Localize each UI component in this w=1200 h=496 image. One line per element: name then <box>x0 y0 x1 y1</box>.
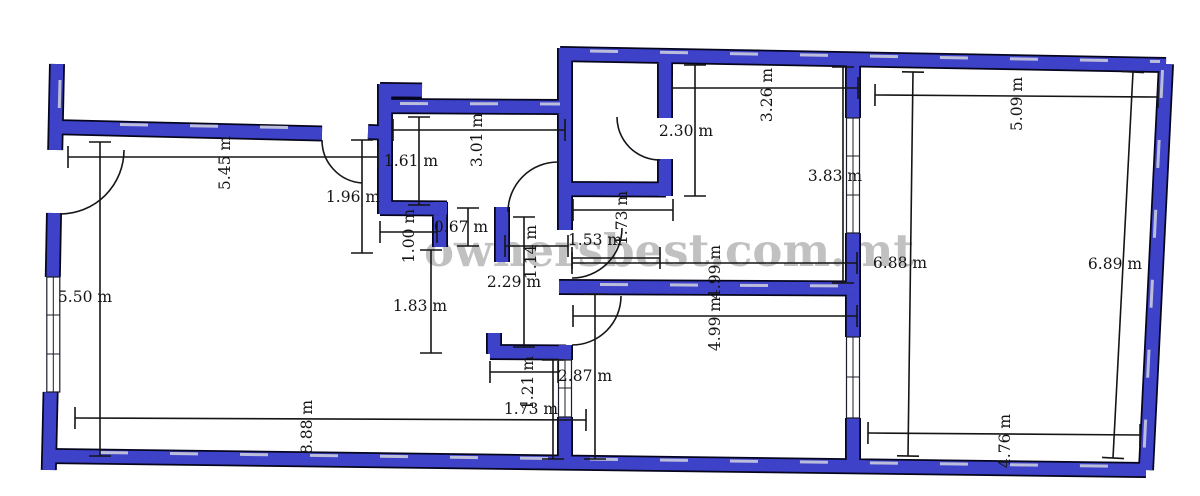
dimension-label: 6.88 m <box>873 254 927 272</box>
dimension-label: 5.09 m <box>1008 77 1026 131</box>
dimension-label: 3.83 m <box>808 167 862 185</box>
dimension-label: 1.00 m <box>400 209 418 263</box>
dimension: 6.88 m <box>873 72 927 456</box>
dimension: 6.89 m <box>1088 71 1144 458</box>
dimension-label: 2.29 m <box>487 273 541 291</box>
window <box>847 337 860 418</box>
door-arc <box>60 150 124 214</box>
dimension: 1.14 m <box>505 225 568 279</box>
dimension: 4.99 m <box>573 297 857 351</box>
dimension-label: 5.45 m <box>216 136 234 190</box>
dimension: 1.83 m <box>393 250 447 353</box>
dimension-label: 1.73 m <box>613 191 631 245</box>
dimension-line <box>75 418 586 420</box>
dimension-label: 4.76 m <box>996 414 1014 468</box>
dimension-label: 0.67 m <box>434 218 488 236</box>
dimension: 5.45 m <box>68 136 378 190</box>
dimension: 5.09 m <box>875 77 1158 131</box>
dimension-label: 1.73 m <box>504 400 558 418</box>
door-arc <box>508 162 558 212</box>
wall-fill <box>48 48 1166 470</box>
door-arc <box>322 140 362 183</box>
dimension-tick <box>1122 71 1144 72</box>
dimension-label: 8.88 m <box>298 400 316 454</box>
windows-layer <box>47 118 860 418</box>
dimension: 3.26 m <box>672 68 858 122</box>
dimension: 5.50 m <box>58 142 112 456</box>
dimension-label: 5.50 m <box>58 288 112 306</box>
dimension-label: 3.26 m <box>758 68 776 122</box>
floor-plan-page: ownersbest.com.mt <box>0 0 1200 496</box>
wall-outline <box>48 48 1166 470</box>
floor-plan-svg: 5.45 m5.50 m1.61 m3.01 m1.96 m1.00 m0.67… <box>0 0 1200 496</box>
dimension: 1.00 m <box>380 209 437 263</box>
dimension-label: 6.89 m <box>1088 255 1142 273</box>
dimension-label: 1.83 m <box>393 297 447 315</box>
door-arc <box>572 296 621 345</box>
dimension-tick <box>1102 457 1124 458</box>
dimension-label: 3.01 m <box>468 113 486 167</box>
dimension-label: 4.99 m <box>706 245 724 299</box>
dimension-label: 2.87 m <box>558 367 612 385</box>
dimension-label: 1.61 m <box>384 152 438 170</box>
dimension-label: 4.99 m <box>706 297 724 351</box>
walls-layer <box>48 48 1166 470</box>
door-arc <box>617 117 660 160</box>
dimension-label: 1.96 m <box>326 188 380 206</box>
dimension-label: 2.30 m <box>659 122 713 140</box>
